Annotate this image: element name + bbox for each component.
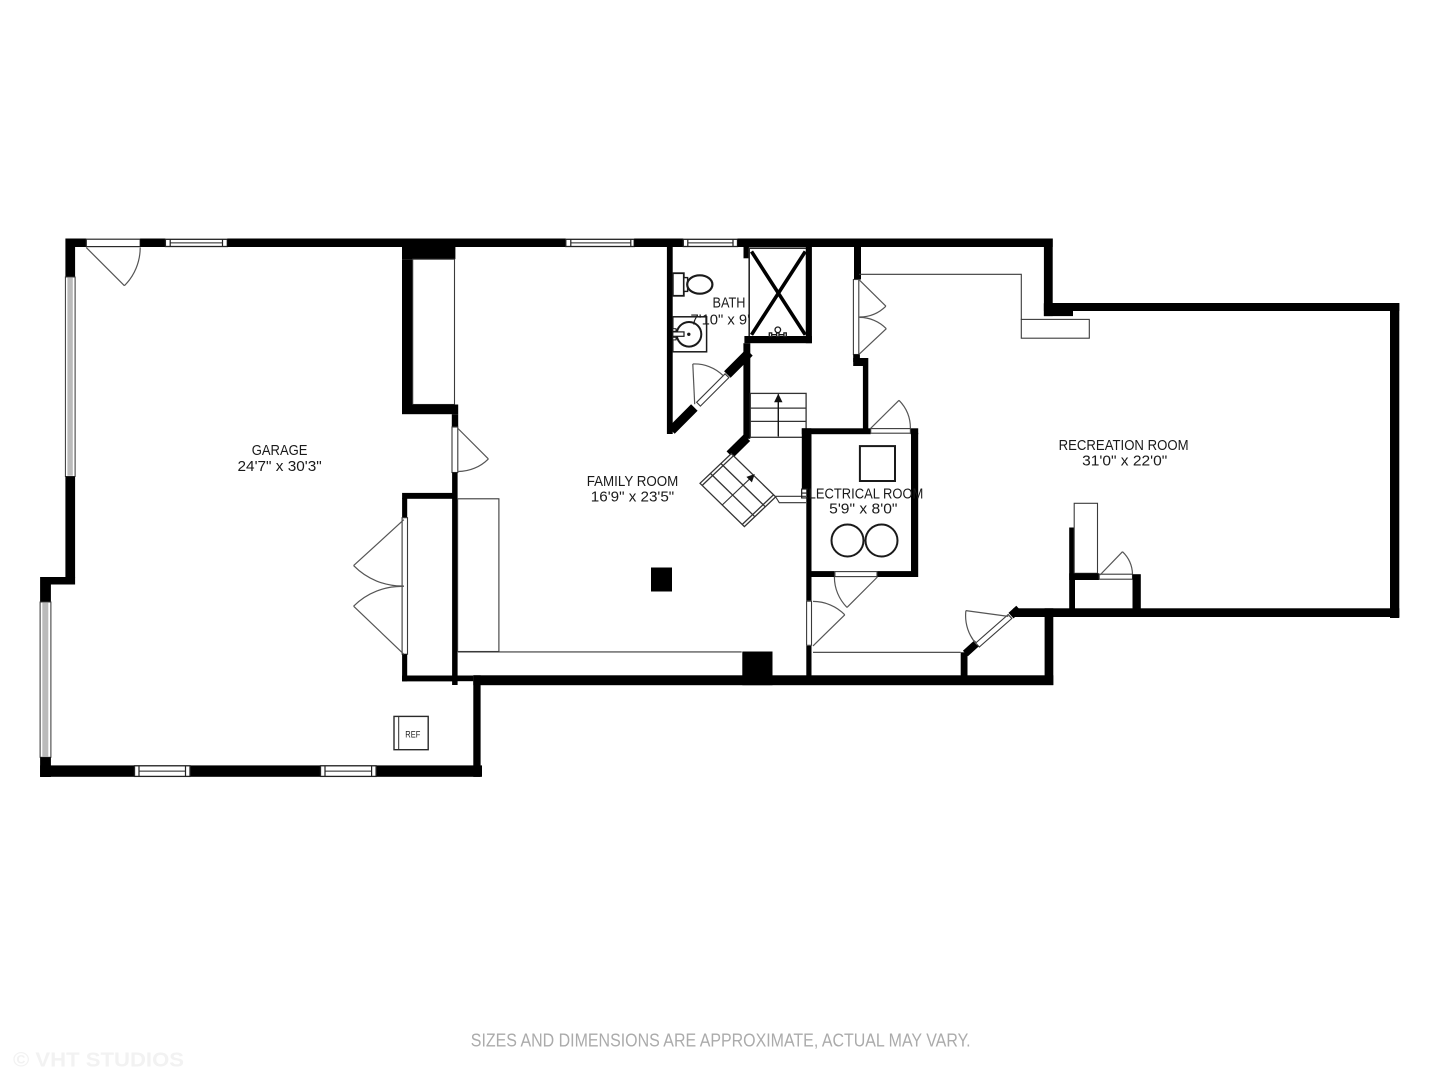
svg-text:BATH: BATH <box>713 296 746 312</box>
svg-text:SIZES AND DIMENSIONS ARE APPRO: SIZES AND DIMENSIONS ARE APPROXIMATE, AC… <box>471 1029 971 1050</box>
svg-text:© VHT STUDIOS: © VHT STUDIOS <box>13 1050 184 1072</box>
svg-text:RECREATION ROOM: RECREATION ROOM <box>1059 438 1189 454</box>
svg-text:31'0" x 22'0": 31'0" x 22'0" <box>1082 454 1167 470</box>
svg-text:REF: REF <box>405 730 420 740</box>
svg-text:24'7" x 30'3": 24'7" x 30'3" <box>238 459 322 475</box>
svg-text:5'9" x 8'0": 5'9" x 8'0" <box>829 501 897 517</box>
svg-text:16'9" x 23'5": 16'9" x 23'5" <box>591 490 674 506</box>
svg-text:ELECTRICAL ROOM: ELECTRICAL ROOM <box>800 486 923 502</box>
svg-text:FAMILY ROOM: FAMILY ROOM <box>587 474 679 490</box>
svg-text:GARAGE: GARAGE <box>252 443 308 459</box>
